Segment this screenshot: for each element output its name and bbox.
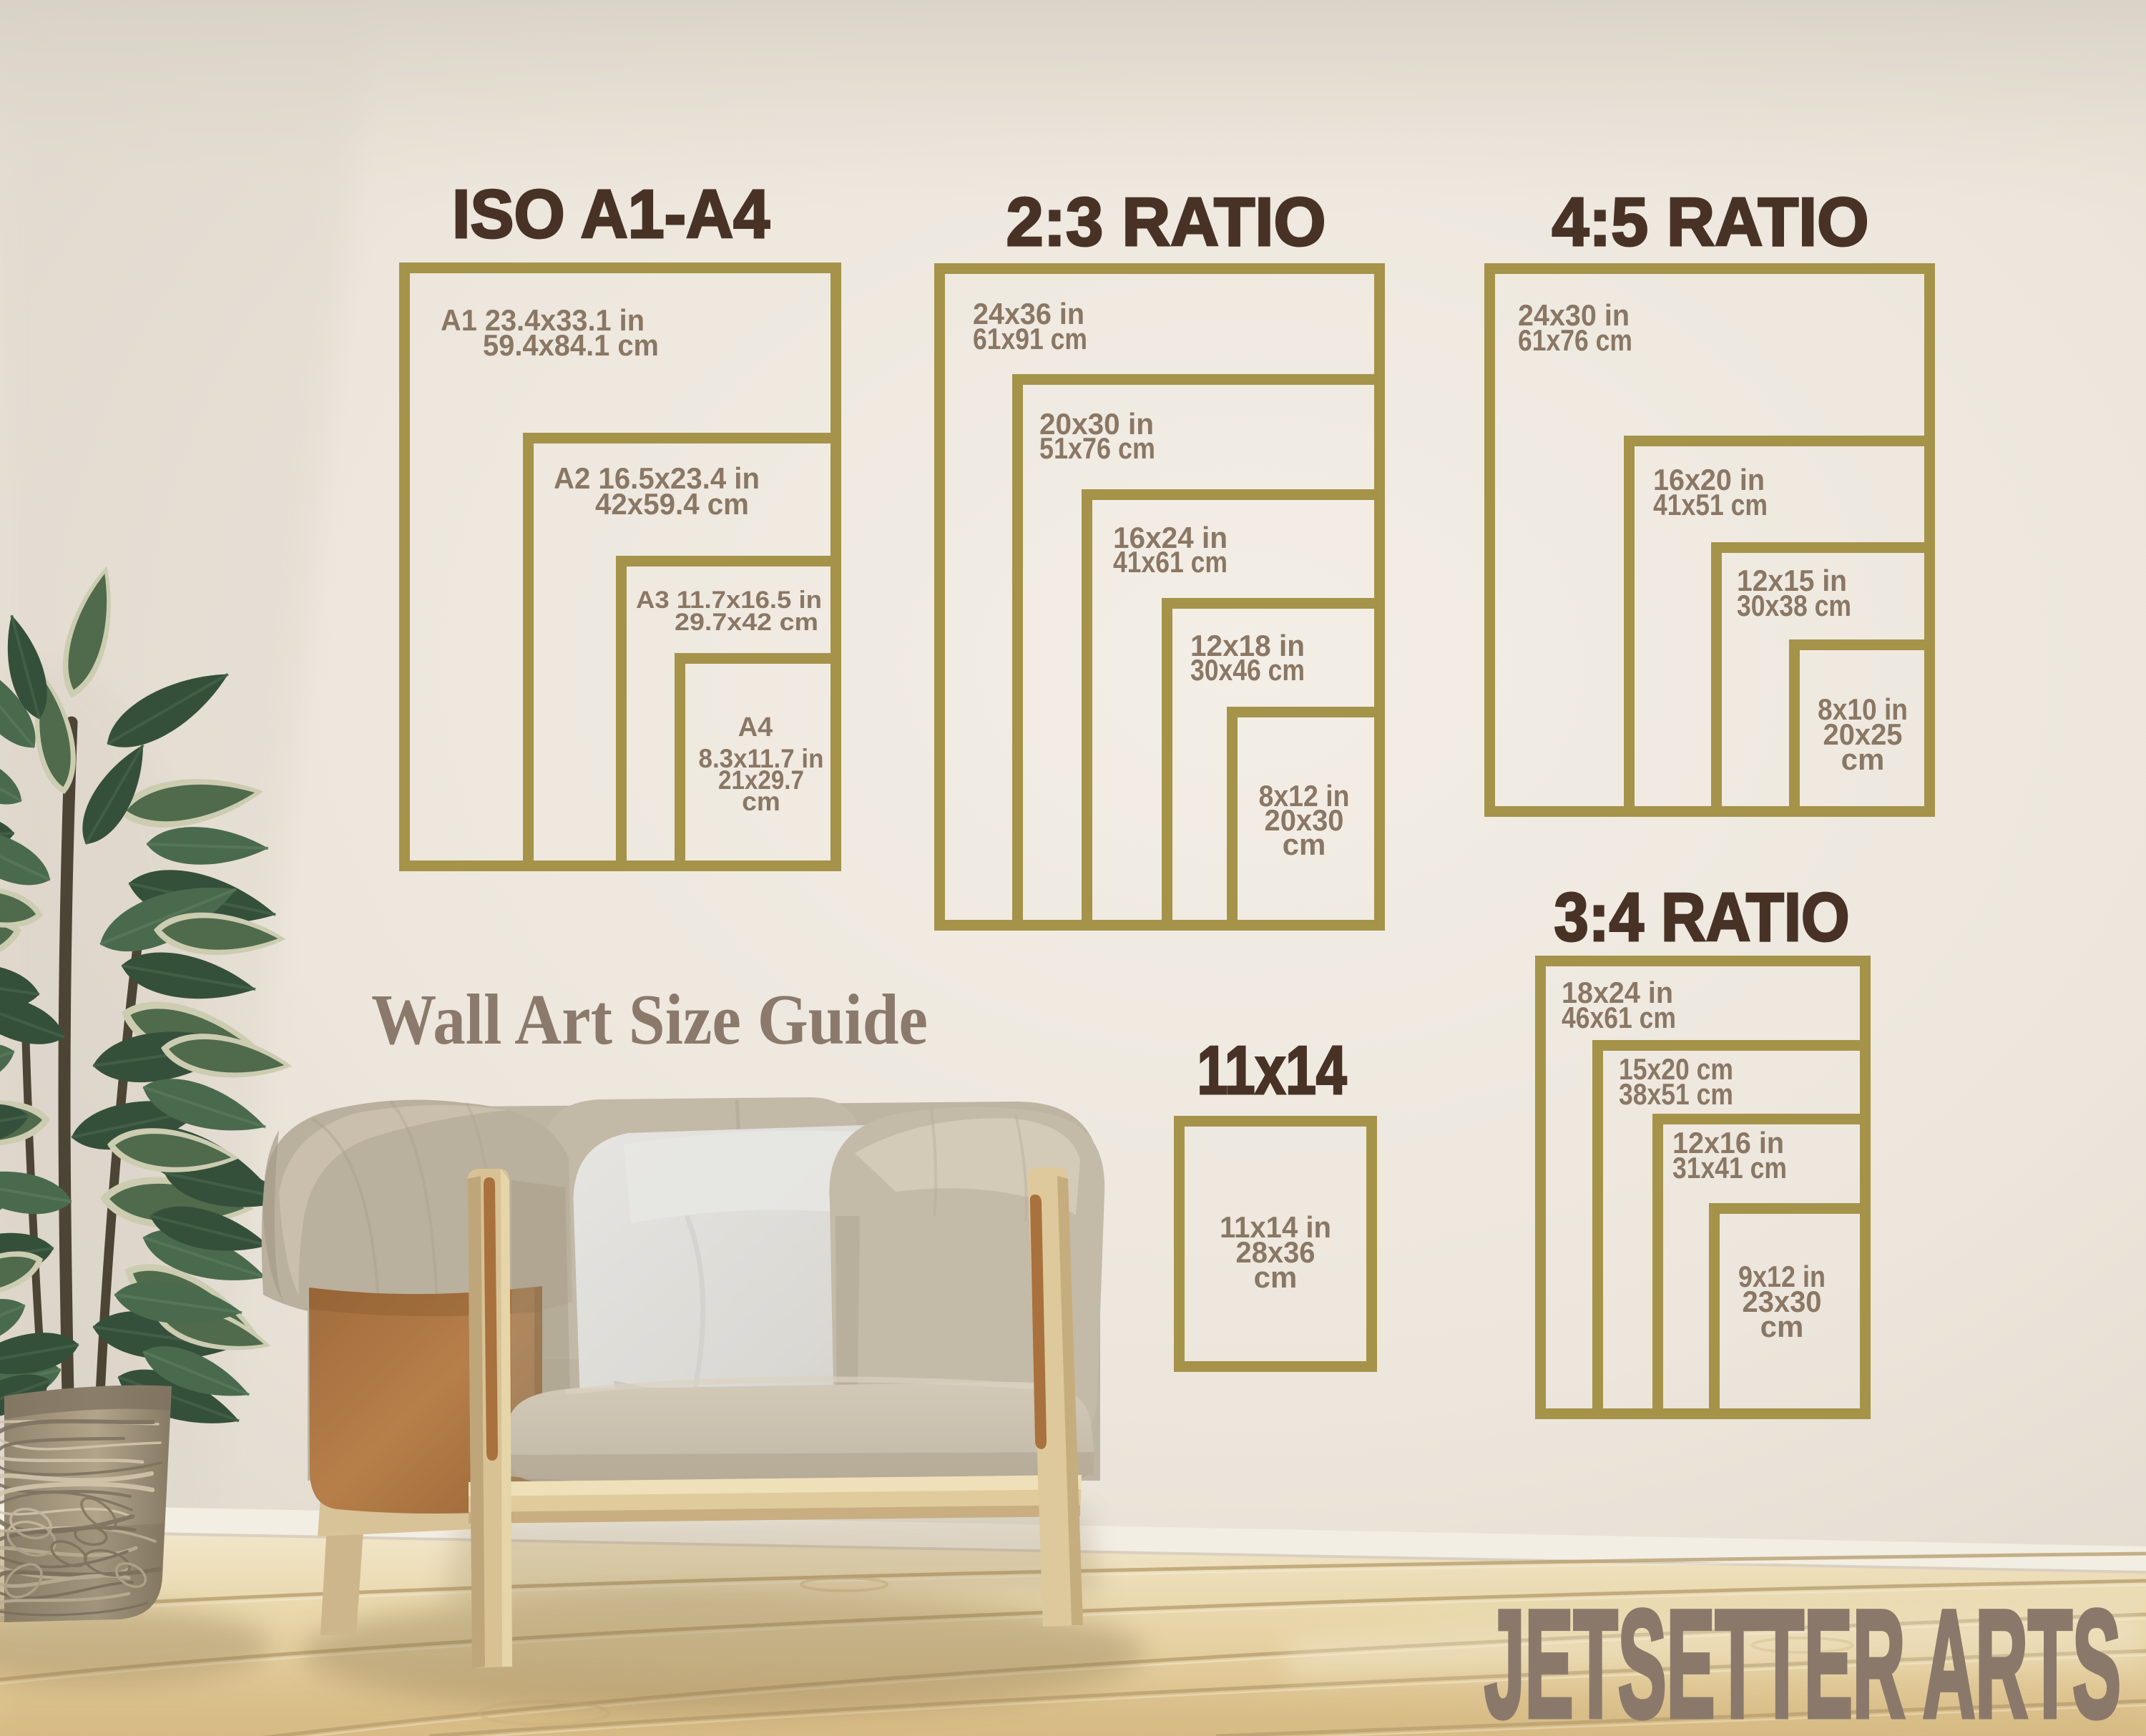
svg-text:3:4 RATIO: 3:4 RATIO (1554, 879, 1850, 956)
svg-text:cm: cm (1254, 1260, 1298, 1294)
svg-text:30x38 cm: 30x38 cm (1737, 589, 1851, 622)
svg-text:31x41 cm: 31x41 cm (1672, 1151, 1787, 1185)
svg-text:cm: cm (742, 787, 780, 816)
svg-text:2:3 RATIO: 2:3 RATIO (1006, 184, 1326, 260)
svg-text:59.4x84.1 cm: 59.4x84.1 cm (483, 328, 659, 362)
svg-text:Wall Art Size Guide: Wall Art Size Guide (371, 979, 928, 1059)
svg-text:41x61 cm: 41x61 cm (1113, 545, 1228, 579)
svg-text:cm: cm (1283, 828, 1326, 861)
svg-text:A4: A4 (738, 712, 773, 742)
svg-text:29.7x42 cm: 29.7x42 cm (675, 609, 818, 636)
svg-text:61x91 cm: 61x91 cm (973, 322, 1087, 355)
svg-text:11x14: 11x14 (1197, 1032, 1347, 1109)
svg-text:4:5 RATIO: 4:5 RATIO (1552, 184, 1869, 260)
svg-text:46x61 cm: 46x61 cm (1562, 1001, 1676, 1034)
svg-text:cm: cm (1760, 1310, 1804, 1343)
svg-text:cm: cm (1841, 742, 1885, 776)
svg-text:38x51 cm: 38x51 cm (1619, 1077, 1733, 1111)
svg-text:30x46 cm: 30x46 cm (1190, 653, 1305, 687)
svg-text:JETSETTER ARTS: JETSETTER ARTS (1484, 1579, 2121, 1736)
svg-text:61x76 cm: 61x76 cm (1518, 323, 1632, 357)
svg-text:41x51 cm: 41x51 cm (1653, 488, 1768, 521)
svg-text:42x59.4 cm: 42x59.4 cm (595, 487, 749, 521)
svg-text:51x76 cm: 51x76 cm (1039, 431, 1155, 465)
svg-text:ISO A1-A4: ISO A1-A4 (452, 176, 770, 252)
